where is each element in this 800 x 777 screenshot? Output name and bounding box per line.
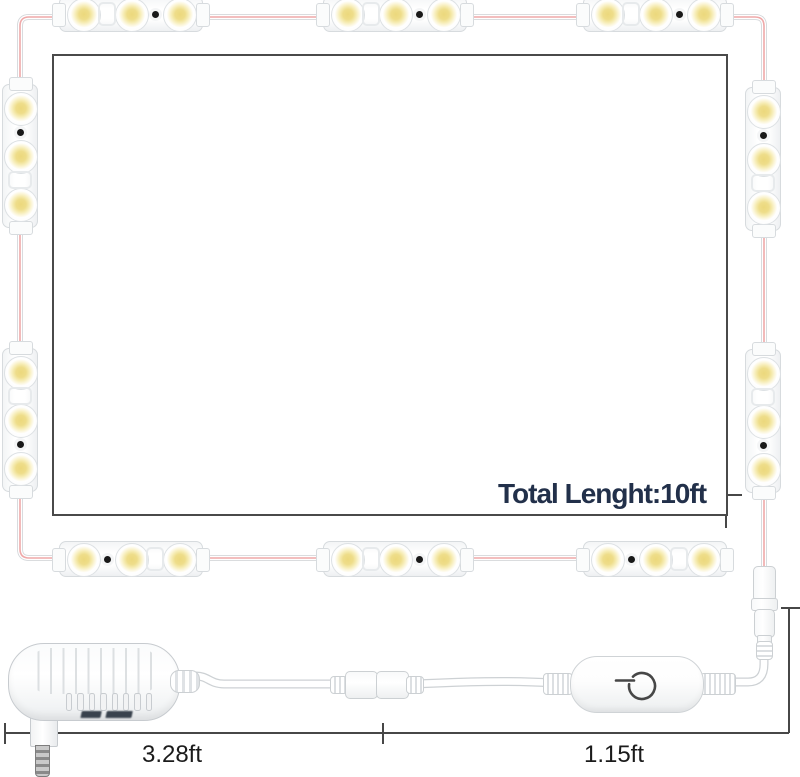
dc-connector-mid (330, 670, 422, 698)
module-end-tab (720, 548, 734, 572)
screw-boss (146, 547, 164, 571)
module-end-tab (720, 3, 734, 27)
dc-connector-right (750, 564, 778, 660)
module-end-tab (460, 548, 474, 572)
module-end-tab (752, 224, 776, 238)
sensor-dot (628, 556, 635, 563)
screw-boss (362, 547, 380, 571)
sensor-dot (416, 11, 423, 18)
module-end-tab (52, 3, 66, 27)
adapter-vent-slot (100, 693, 106, 711)
led-module-top-1 (51, 0, 211, 36)
led-module-bottom-1 (51, 537, 211, 581)
led-lamp (747, 405, 781, 439)
led-lamp (115, 543, 149, 577)
led-lamp (4, 404, 38, 438)
module-end-tab (576, 3, 590, 27)
led-lamp (747, 95, 781, 129)
module-end-tab (576, 548, 590, 572)
adapter-vent-slot (112, 693, 118, 711)
module-end-tab (316, 3, 330, 27)
screw-boss (622, 2, 640, 26)
adapter-vent-slot (89, 693, 95, 711)
led-module-left-1 (0, 76, 42, 236)
sensor-dot (104, 556, 111, 563)
led-module-right-1 (741, 79, 785, 239)
mirror-panel (52, 54, 728, 516)
led-lamp (4, 140, 38, 174)
led-module-top-3 (575, 0, 735, 36)
screw-boss (8, 171, 32, 189)
eu-plug-pin (35, 745, 50, 777)
connector-barrel-right (376, 671, 409, 699)
led-lamp (4, 356, 38, 390)
dimmer-segment-length-label: 1.15ft (544, 741, 684, 769)
module-end-tab (752, 80, 776, 94)
led-lamp (4, 92, 38, 126)
module-end-tab (9, 485, 33, 499)
module-end-tab (9, 77, 33, 91)
dimmer-ribs-left (543, 673, 573, 695)
power-icon (571, 657, 703, 712)
screw-boss (98, 2, 116, 26)
module-end-tab (752, 486, 776, 500)
sensor-dot (760, 132, 767, 139)
led-lamp (747, 357, 781, 391)
adapter-vent-slot (134, 693, 140, 711)
led-lamp (591, 543, 625, 577)
led-lamp (4, 452, 38, 486)
module-end-tab (196, 548, 210, 572)
module-end-tab (316, 548, 330, 572)
led-module-top-2 (315, 0, 475, 36)
module-end-tab (9, 341, 33, 355)
screw-boss (751, 174, 775, 192)
screw-boss (751, 388, 775, 406)
led-module-left-2 (0, 340, 42, 500)
adapter-vent-slot (123, 693, 129, 711)
adapter-ridges (27, 648, 161, 694)
led-lamp (67, 543, 101, 577)
adapter-vents (66, 693, 152, 710)
sensor-dot (17, 129, 24, 136)
led-lamp (4, 188, 38, 222)
sensor-dot (760, 442, 767, 449)
sensor-dot (676, 11, 683, 18)
module-end-tab (9, 221, 33, 235)
product-diagram: Total Lenght:10ft (0, 0, 800, 777)
led-lamp (747, 143, 781, 177)
led-lamp (639, 543, 673, 577)
adapter-vent-slot (146, 693, 152, 711)
jack-barrel (753, 566, 776, 602)
module-end-tab (52, 548, 66, 572)
led-module-right-2 (741, 341, 785, 501)
adapter-body (8, 643, 180, 721)
module-end-tab (752, 342, 776, 356)
module-end-tab (196, 3, 210, 27)
led-module-bottom-3 (575, 537, 735, 581)
screw-boss (8, 387, 32, 405)
module-end-tab (460, 3, 474, 27)
total-length-label: Total Lenght:10ft (498, 478, 706, 510)
screw-boss (670, 547, 688, 571)
led-lamp (687, 543, 721, 577)
led-lamp (747, 453, 781, 487)
led-lamp (331, 543, 365, 577)
led-lamp (427, 543, 461, 577)
screw-boss (362, 2, 380, 26)
touch-dimmer[interactable] (570, 656, 704, 713)
dimmer-ribs-right (700, 673, 736, 695)
sensor-dot (152, 11, 159, 18)
adapter-strain-relief (170, 670, 200, 693)
led-lamp (747, 191, 781, 225)
adapter-vent-slot (66, 693, 72, 711)
connector-ribs-right (406, 676, 424, 694)
sensor-dot (416, 556, 423, 563)
plug-barrel (754, 609, 775, 638)
led-lamp (163, 543, 197, 577)
adapter-segment-length-label: 3.28ft (102, 741, 242, 769)
sensor-dot (17, 441, 24, 448)
led-module-bottom-2 (315, 537, 475, 581)
led-lamp (379, 543, 413, 577)
adapter-label-print (80, 710, 138, 720)
connector-barrel-left (345, 671, 378, 699)
adapter-vent-slot (77, 693, 83, 711)
plug-ribs (756, 641, 773, 660)
